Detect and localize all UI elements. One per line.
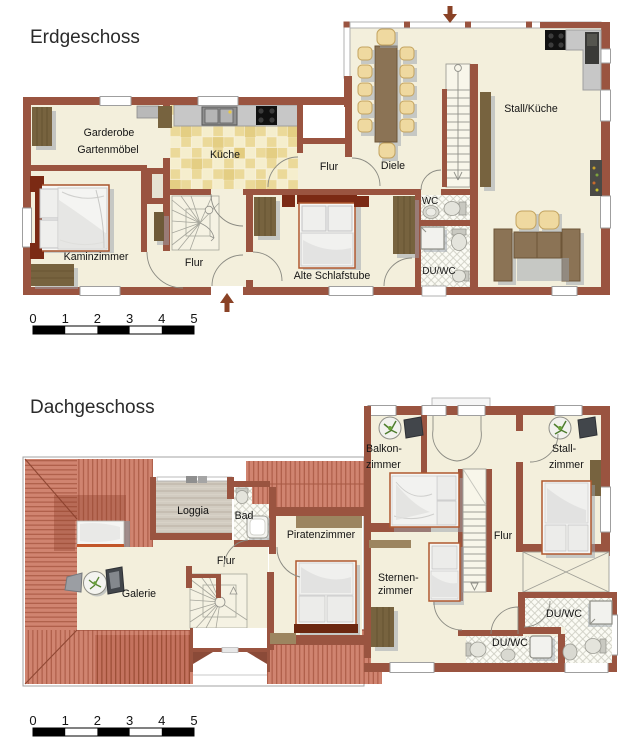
svg-text:DU/WC: DU/WC xyxy=(422,266,455,277)
svg-text:zimmer: zimmer xyxy=(378,585,413,597)
svg-text:Garderobe: Garderobe xyxy=(84,127,135,139)
svg-text:Gartenmöbel: Gartenmöbel xyxy=(77,144,138,156)
svg-text:0: 0 xyxy=(29,713,36,728)
svg-text:Flur: Flur xyxy=(494,530,513,542)
svg-text:DU/WC: DU/WC xyxy=(546,608,582,620)
svg-text:WC: WC xyxy=(422,196,438,207)
svg-text:1: 1 xyxy=(62,311,69,326)
svg-text:Alte Schlafstube: Alte Schlafstube xyxy=(294,270,371,282)
svg-text:Erdgeschoss: Erdgeschoss xyxy=(30,27,140,48)
svg-text:DU/WC: DU/WC xyxy=(492,637,528,649)
svg-text:Diele: Diele xyxy=(381,160,405,172)
svg-text:Piratenzimmer: Piratenzimmer xyxy=(287,529,356,541)
svg-text:3: 3 xyxy=(126,311,133,326)
svg-text:Stall/Küche: Stall/Küche xyxy=(504,103,558,115)
svg-text:Küche: Küche xyxy=(210,149,240,161)
svg-text:Sternen-: Sternen- xyxy=(378,572,419,584)
svg-text:zimmer: zimmer xyxy=(366,459,401,471)
svg-text:5: 5 xyxy=(190,311,197,326)
svg-text:2: 2 xyxy=(94,713,101,728)
svg-text:Bad: Bad xyxy=(235,510,254,522)
svg-text:zimmer: zimmer xyxy=(549,459,584,471)
svg-text:5: 5 xyxy=(190,713,197,728)
svg-text:Stall-: Stall- xyxy=(552,443,577,455)
svg-text:Flur: Flur xyxy=(320,161,339,173)
svg-text:Loggia: Loggia xyxy=(177,505,209,517)
svg-text:4: 4 xyxy=(158,311,165,326)
svg-text:Kaminzimmer: Kaminzimmer xyxy=(64,251,129,263)
svg-text:Balkon-: Balkon- xyxy=(366,443,402,455)
svg-text:3: 3 xyxy=(126,713,133,728)
svg-text:1: 1 xyxy=(62,713,69,728)
svg-text:2: 2 xyxy=(94,311,101,326)
svg-text:0: 0 xyxy=(29,311,36,326)
svg-text:Dachgeschoss: Dachgeschoss xyxy=(30,397,155,418)
svg-text:Galerie: Galerie xyxy=(122,588,156,600)
svg-text:Flur: Flur xyxy=(185,257,204,269)
svg-text:4: 4 xyxy=(158,713,165,728)
